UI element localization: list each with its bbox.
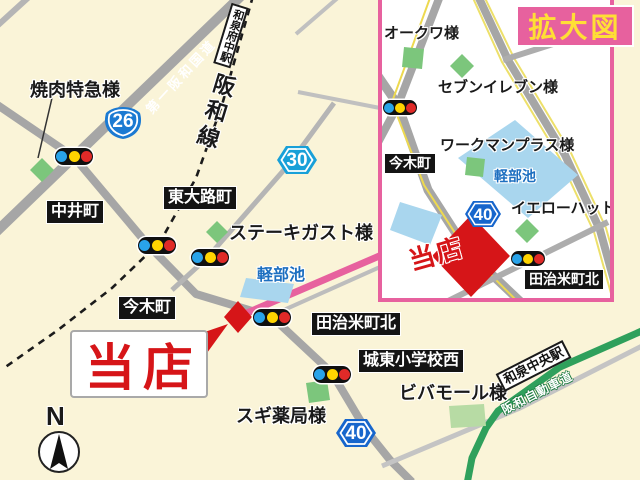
corner-road <box>0 0 30 26</box>
route-26-number: 26 <box>100 101 146 141</box>
label-karube-pond: 軽部池 <box>257 261 305 285</box>
red-light <box>164 240 175 251</box>
inset-route-40-number: 40 <box>462 196 504 232</box>
route-40-number: 40 <box>333 413 379 453</box>
red-light <box>406 103 416 113</box>
yellow-hat-marker <box>515 219 539 243</box>
blue-light <box>192 252 203 263</box>
yellow-light <box>327 369 338 380</box>
traffic-light-icon <box>253 309 291 326</box>
route-26-badge: 26 <box>100 101 146 141</box>
yellow-light <box>152 240 163 251</box>
inset-route-40-badge: 40 <box>462 196 504 232</box>
yellow-light <box>205 252 216 263</box>
route-30-number: 30 <box>274 140 320 180</box>
vivamall-building <box>449 404 486 428</box>
label-sugi-yakkyoku: スギ薬局様 <box>236 402 326 428</box>
label-higashi-oji-cho: 東大路町 <box>164 187 236 209</box>
sugi-marker <box>306 380 330 403</box>
traffic-light-icon <box>191 249 229 266</box>
yellow-light <box>395 103 405 113</box>
blue-light <box>512 254 522 264</box>
seven-eleven-marker <box>450 54 474 78</box>
label-steak-gusto: ステーキガスト様 <box>229 219 373 245</box>
label-yakiniku-tokkyu: 焼肉特急様 <box>30 76 120 102</box>
inset-label-seven-eleven: セブンイレブン様 <box>438 76 558 97</box>
blue-light <box>56 151 67 162</box>
label-viva-mall: ビバモール様 <box>399 379 507 405</box>
blue-light <box>314 369 325 380</box>
blue-light <box>254 312 265 323</box>
label-nakai-cho: 中井町 <box>47 201 103 223</box>
traffic-light-icon <box>383 100 417 115</box>
red-light <box>217 252 228 263</box>
yellow-light <box>267 312 278 323</box>
label-joto-shogakko-nishi: 城東小学校西 <box>359 350 463 372</box>
yellow-light <box>69 151 80 162</box>
okuwa-marker <box>402 47 424 69</box>
route-30-badge: 30 <box>274 140 320 180</box>
traffic-light-icon <box>55 148 93 165</box>
red-light <box>81 151 92 162</box>
yellow-light <box>523 254 533 264</box>
thin-road-1 <box>298 92 380 108</box>
yakiniku-leader-line <box>38 98 52 158</box>
blue-light <box>139 240 150 251</box>
blue-light <box>384 103 394 113</box>
inset-label-yellow-hat: イエローハット様 <box>511 197 614 218</box>
inset-label-okuwa: オークワ様 <box>384 22 459 43</box>
access-map: 26 30 40 焼肉特急様 中井町 東大路町 ステーキガスト様 軽部池 今木町… <box>0 0 640 480</box>
red-light <box>339 369 350 380</box>
our-store-callout: 当店 <box>70 330 208 398</box>
red-light <box>279 312 290 323</box>
inset-label-workman-plus: ワークマンプラス様 <box>440 134 574 155</box>
workman-marker <box>465 157 485 177</box>
label-imaki-cho: 今木町 <box>119 297 175 319</box>
thin-road-2 <box>296 0 340 34</box>
route-40-badge: 40 <box>333 413 379 453</box>
traffic-light-icon <box>138 237 176 254</box>
inset-label-karube-pond: 軽部池 <box>494 166 536 186</box>
inset-label-imaki-cho: 今木町 <box>385 154 435 173</box>
compass-north-label: N <box>46 401 65 432</box>
red-light <box>534 254 544 264</box>
label-tajime-cho-kita: 田治米町北 <box>312 313 400 335</box>
inset-label-tajime-cho-kita: 田治米町北 <box>525 270 603 289</box>
traffic-light-icon <box>511 251 545 266</box>
traffic-light-icon <box>313 366 351 383</box>
kakudai-zu-title: 拡大図 <box>516 5 634 47</box>
